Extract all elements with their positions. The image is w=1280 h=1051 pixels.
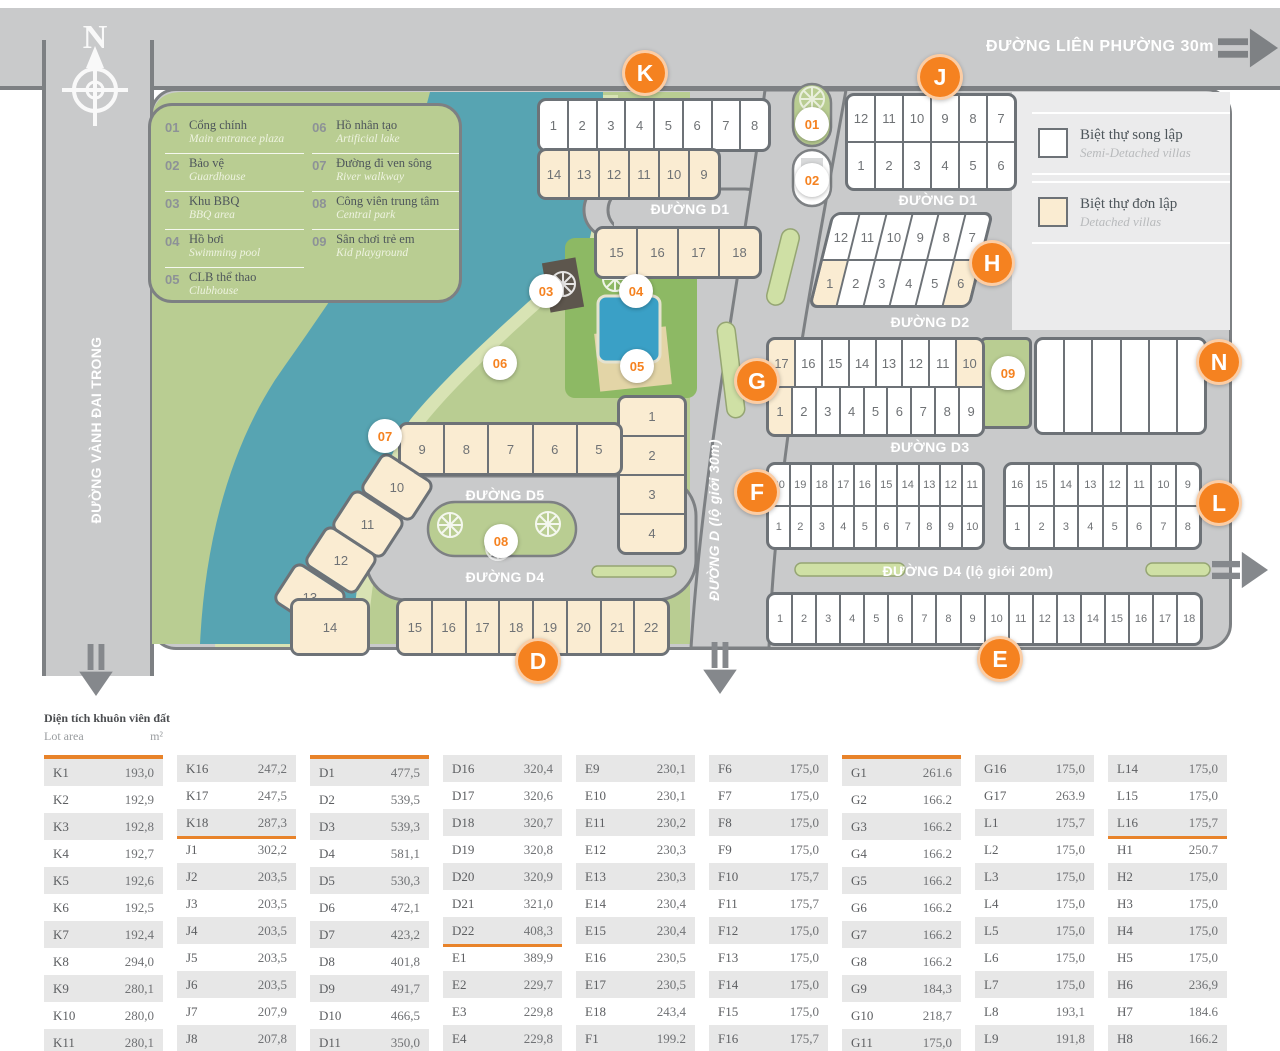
table-row: D10466,5 bbox=[310, 1002, 429, 1029]
lot-id: D19 bbox=[452, 842, 474, 858]
lot-number: 17 bbox=[475, 620, 489, 635]
lot-cell: 11 bbox=[1010, 595, 1032, 643]
lot-table-column-9: L14175,0L15175,0L16175,7H1250.7H2175,0H3… bbox=[1108, 755, 1227, 1051]
lot-id: F16 bbox=[718, 1031, 738, 1047]
lot-id: K8 bbox=[53, 954, 69, 970]
lot-id: H3 bbox=[1117, 896, 1133, 912]
amenity-marker-07: 07 bbox=[368, 419, 402, 453]
lot-id: E10 bbox=[585, 788, 606, 804]
lot-cell: 12 bbox=[1104, 465, 1126, 505]
lot-number: 14 bbox=[1087, 613, 1099, 625]
table-row: K11280,1 bbox=[44, 1029, 163, 1051]
lot-area-value: 175,0 bbox=[1056, 896, 1085, 912]
lot-cell: 19 bbox=[791, 465, 811, 505]
lot-id: G6 bbox=[851, 900, 867, 916]
lot-area-value: 530,3 bbox=[391, 873, 420, 889]
lot-id: K17 bbox=[186, 788, 208, 804]
lot-cell: 4 bbox=[626, 101, 653, 149]
legend-item-number: 07 bbox=[312, 157, 336, 173]
lot-cell bbox=[1122, 340, 1148, 432]
lot-cell: 16 bbox=[638, 229, 677, 276]
lot-id: D11 bbox=[319, 1035, 341, 1051]
lot-number: 3 bbox=[913, 158, 920, 173]
marker-L: L bbox=[1196, 480, 1242, 526]
block-row: 161514131211109 bbox=[1006, 465, 1199, 505]
lot-area-value: 166.2 bbox=[923, 954, 952, 970]
lot-area-value: 477,5 bbox=[391, 765, 420, 781]
lot-id: G3 bbox=[851, 819, 867, 835]
table-row: J3203,5 bbox=[177, 890, 296, 917]
block-row: 4 bbox=[620, 515, 684, 552]
block-row bbox=[1037, 340, 1204, 432]
lot-number: 5 bbox=[1112, 521, 1118, 533]
lot-area-value: 203,5 bbox=[258, 896, 287, 912]
lot-area-value: 250.7 bbox=[1189, 842, 1218, 858]
legend-item-text: Khu BBQBBQ area bbox=[189, 195, 239, 222]
lot-cell: 21 bbox=[602, 601, 634, 653]
lot-number: 16 bbox=[441, 620, 455, 635]
lot-id: D2 bbox=[319, 792, 335, 808]
lot-number: 2 bbox=[1039, 521, 1045, 533]
table-row: G4166.2 bbox=[842, 840, 961, 867]
legend-item-03: 03Khu BBQBBQ area bbox=[165, 192, 304, 230]
lot-id: E13 bbox=[585, 869, 606, 885]
lot-area-value: 175,0 bbox=[790, 788, 819, 804]
block-d_up: 98765 bbox=[398, 422, 623, 476]
lot-id: F1 bbox=[585, 1031, 599, 1047]
table-row: H8166.2 bbox=[1108, 1025, 1227, 1051]
lot-id: E17 bbox=[585, 977, 606, 993]
table-row: G1261.6 bbox=[842, 759, 961, 786]
block-j: 121110987123456 bbox=[845, 93, 1017, 191]
lot-table-header: Diện tích khuôn viên đất Lot area m² bbox=[44, 711, 163, 744]
lot-number: 7 bbox=[969, 230, 976, 245]
block-k_mid: 14131211109 bbox=[537, 148, 721, 200]
road-label-d5: ĐƯỜNG D5 bbox=[466, 487, 545, 503]
table-row: D5530,3 bbox=[310, 867, 429, 894]
table-row: E9230,1 bbox=[576, 755, 695, 782]
lot-cell bbox=[1037, 340, 1063, 432]
road-label-d4-main: ĐƯỜNG D4 (lộ giới 20m) bbox=[883, 563, 1054, 579]
lot-number: 9 bbox=[948, 521, 954, 533]
legend-item-text: Hồ nhân tạoArtificial lake bbox=[336, 119, 400, 146]
lot-number: 6 bbox=[896, 404, 903, 419]
lot-id: L14 bbox=[1117, 761, 1138, 777]
lot-cell: 1 bbox=[769, 595, 791, 643]
villa-swatch-icon bbox=[1038, 128, 1068, 158]
lot-cell: 3 bbox=[904, 143, 930, 188]
lot-id: D16 bbox=[452, 761, 474, 777]
lot-area-value: 175,7 bbox=[1056, 815, 1085, 831]
table-row: D22408,3 bbox=[443, 917, 562, 944]
block-n_block bbox=[1034, 337, 1207, 435]
lot-id: K4 bbox=[53, 846, 69, 862]
lot-cell: 2 bbox=[791, 507, 811, 547]
table-row: K8294,0 bbox=[44, 948, 163, 975]
lot-cell: 3 bbox=[620, 476, 684, 513]
lot-area-value: 539,5 bbox=[391, 792, 420, 808]
lot-number: 17 bbox=[837, 479, 849, 491]
lot-cell: 10 bbox=[660, 151, 688, 197]
legend-item-text: Công viên trung tâmCentral park bbox=[336, 195, 439, 222]
table-row: L1175,7 bbox=[975, 809, 1094, 836]
lot-number: 14 bbox=[323, 620, 337, 635]
legend-item-09: 09Sân chơi trẻ emKid playground bbox=[312, 230, 459, 267]
lot-cell: 14 bbox=[540, 151, 568, 197]
table-row: D3539,3 bbox=[310, 813, 429, 840]
lot-area-value: 175,0 bbox=[1189, 923, 1218, 939]
legend-item-number: 06 bbox=[312, 119, 336, 135]
legend-item-name-en: BBQ area bbox=[189, 209, 239, 222]
lot-id: G2 bbox=[851, 792, 867, 808]
lot-number: 7 bbox=[921, 613, 927, 625]
amenity-legend-col2: 06Hồ nhân tạoArtificial lake07Đường đi v… bbox=[312, 116, 459, 305]
lot-number: 2 bbox=[579, 118, 586, 133]
lot-number: 5 bbox=[969, 158, 976, 173]
lot-cell: 13 bbox=[1058, 595, 1080, 643]
lot-area-value: 199.2 bbox=[657, 1031, 686, 1047]
lot-area-value: 491,7 bbox=[391, 981, 420, 997]
lot-area-value: 472,1 bbox=[391, 900, 420, 916]
lot-number: 2 bbox=[885, 158, 892, 173]
table-row: G6166.2 bbox=[842, 894, 961, 921]
lot-number: 18 bbox=[509, 620, 523, 635]
lot-area-value: 207,8 bbox=[258, 1031, 287, 1047]
legend-item-text: Bảo vệGuardhouse bbox=[189, 157, 245, 184]
lot-id: H5 bbox=[1117, 950, 1133, 966]
lot-id: F12 bbox=[718, 923, 738, 939]
table-row: G7166.2 bbox=[842, 921, 961, 948]
lot-area-value: 166.2 bbox=[1189, 1031, 1218, 1047]
legend-item-06: 06Hồ nhân tạoArtificial lake bbox=[312, 116, 459, 154]
block-row: 14131211109 bbox=[540, 151, 718, 197]
table-row: L2175,0 bbox=[975, 836, 1094, 863]
lot-cell: 18 bbox=[812, 465, 832, 505]
lot-cell: 15 bbox=[823, 340, 848, 386]
table-row: F16175,7 bbox=[709, 1025, 828, 1051]
lot-cell: 7 bbox=[988, 96, 1014, 141]
lot-number: 9 bbox=[418, 442, 425, 457]
lot-area-value: 243,4 bbox=[657, 1004, 686, 1020]
lot-number: 6 bbox=[694, 118, 701, 133]
lot-id: K11 bbox=[53, 1035, 75, 1051]
lot-number: 4 bbox=[905, 276, 912, 291]
lot-area-value: 175,0 bbox=[790, 950, 819, 966]
road-label-d1-left: ĐƯỜNG D1 bbox=[651, 201, 730, 217]
lot-area-value: 423,2 bbox=[391, 927, 420, 943]
lot-number: 13 bbox=[577, 167, 591, 182]
lot-area-value: 192,6 bbox=[125, 873, 154, 889]
lot-number: 7 bbox=[920, 404, 927, 419]
lot-area-value: 184.6 bbox=[1189, 1004, 1218, 1020]
lot-area-value: 175,7 bbox=[790, 1031, 819, 1047]
lot-area-value: 230,4 bbox=[657, 923, 686, 939]
block-row: 12345678 bbox=[1006, 507, 1199, 547]
lot-number: 6 bbox=[997, 158, 1004, 173]
lot-number: 10 bbox=[966, 521, 978, 533]
lot-area-value: 192,7 bbox=[125, 846, 154, 862]
lot-cell: 7 bbox=[713, 101, 740, 149]
road-label-d4-small: ĐƯỜNG D4 bbox=[466, 569, 545, 585]
lot-number: 15 bbox=[828, 356, 842, 371]
table-row: G5166.2 bbox=[842, 867, 961, 894]
lot-cell: 8 bbox=[1177, 507, 1199, 547]
lot-cell: 14 bbox=[1082, 595, 1104, 643]
lot-id: D8 bbox=[319, 954, 335, 970]
table-row: K3192,8 bbox=[44, 813, 163, 840]
lot-cell: 22 bbox=[635, 601, 667, 653]
lot-id: F15 bbox=[718, 1004, 738, 1020]
lot-number: 8 bbox=[943, 230, 950, 245]
lot-area-value: 191,8 bbox=[1056, 1031, 1085, 1047]
lot-number: 10 bbox=[990, 613, 1002, 625]
table-row: J8207,8 bbox=[177, 1025, 296, 1051]
lot-area-value: 207,9 bbox=[258, 1004, 287, 1020]
table-row: E3229,8 bbox=[443, 998, 562, 1025]
lot-number: 18 bbox=[816, 479, 828, 491]
amenity-marker-03: 03 bbox=[529, 274, 563, 308]
lot-area-value: 229,8 bbox=[524, 1031, 553, 1047]
lot-cell: 14 bbox=[1055, 465, 1077, 505]
legend-item-text: Đường đi ven sôngRiver walkway bbox=[336, 157, 432, 184]
table-row: G2166.2 bbox=[842, 786, 961, 813]
lot-number: 2 bbox=[801, 613, 807, 625]
lot-number: 15 bbox=[609, 245, 623, 260]
lot-area-value: 175,0 bbox=[1056, 977, 1085, 993]
lot-id: G17 bbox=[984, 788, 1006, 804]
table-row: L14175,0 bbox=[1108, 755, 1227, 782]
lot-cell: 16 bbox=[1130, 595, 1152, 643]
lot-area-value: 229,7 bbox=[524, 977, 553, 993]
legend-item-name-en: Kid playground bbox=[336, 247, 414, 260]
table-row: E18243,4 bbox=[576, 998, 695, 1025]
lot-cell: 14 bbox=[898, 465, 918, 505]
table-row: K6192,5 bbox=[44, 894, 163, 921]
lot-number: 11 bbox=[967, 479, 978, 491]
block-row: 1716151413121110 bbox=[769, 340, 982, 386]
lot-cell: 6 bbox=[534, 425, 576, 473]
road-label-vanh-dai-trong: ĐƯỜNG VÀNH ĐAI TRONG bbox=[88, 337, 104, 524]
lot-area-value: 175,7 bbox=[790, 896, 819, 912]
lot-area-value: 263.9 bbox=[1056, 788, 1085, 804]
lot-cell: 2 bbox=[1030, 507, 1052, 547]
legend-item-number: 04 bbox=[165, 233, 189, 249]
lot-cell: 20 bbox=[568, 601, 600, 653]
lot-number: 1 bbox=[857, 158, 864, 173]
legend-item-name-vi: Hồ nhân tạo bbox=[336, 119, 400, 133]
lot-number: 10 bbox=[886, 230, 900, 245]
lot-number: 11 bbox=[882, 111, 896, 126]
arrow-right-d4-icon bbox=[1212, 550, 1268, 590]
amenity-legend: 01Cổng chínhMain entrance plaza02Bảo vệG… bbox=[148, 103, 462, 303]
lot-cell: 7 bbox=[912, 388, 934, 434]
villa-type-text: Biệt thự đơn lậpDetached villas bbox=[1080, 195, 1177, 230]
lot-cell: 12 bbox=[1034, 595, 1056, 643]
lot-number: 5 bbox=[595, 442, 602, 457]
lot-table-column-5: E9230,1E10230,1E11230,2E12230,3E13230,3E… bbox=[576, 755, 695, 1051]
lot-number: 11 bbox=[361, 517, 375, 532]
lot-area-value: 236,9 bbox=[1189, 977, 1218, 993]
lot-cell: 18 bbox=[1178, 595, 1200, 643]
table-row: G10218,7 bbox=[842, 1002, 961, 1029]
lot-area-value: 321,0 bbox=[524, 896, 553, 912]
lot-number: 14 bbox=[1060, 479, 1072, 491]
lot-number: 12 bbox=[909, 356, 923, 371]
lot-id: E2 bbox=[452, 977, 466, 993]
table-row: K9280,1 bbox=[44, 975, 163, 1002]
lot-id: H4 bbox=[1117, 923, 1133, 939]
lot-area-value: 229,8 bbox=[524, 1004, 553, 1020]
lot-number: 3 bbox=[825, 613, 831, 625]
lot-id: L2 bbox=[984, 842, 998, 858]
lot-id: K9 bbox=[53, 981, 69, 997]
lot-table-column-3: D1477,5D2539,5D3539,3D4581,1D5530,3D6472… bbox=[310, 755, 429, 1051]
lot-area-value: 408,3 bbox=[524, 923, 553, 939]
lot-area-value: 203,5 bbox=[258, 923, 287, 939]
lot-id: J2 bbox=[186, 869, 198, 885]
table-row: H4175,0 bbox=[1108, 917, 1227, 944]
lot-area-value: 175,0 bbox=[790, 1004, 819, 1020]
lot-id: K3 bbox=[53, 819, 69, 835]
lot-number: 9 bbox=[941, 111, 948, 126]
marker-E: E bbox=[977, 636, 1023, 682]
lot-id: K18 bbox=[186, 815, 208, 831]
lot-id: F6 bbox=[718, 761, 732, 777]
table-row: K5192,6 bbox=[44, 867, 163, 894]
lot-number: 8 bbox=[751, 118, 758, 133]
lot-area-value: 280,1 bbox=[125, 1035, 154, 1051]
lot-area-value: 192,4 bbox=[125, 927, 154, 943]
table-row: E16230,5 bbox=[576, 944, 695, 971]
table-row: K7192,4 bbox=[44, 921, 163, 948]
lot-cell: 17 bbox=[467, 601, 499, 653]
lot-area-value: 230,2 bbox=[657, 815, 686, 831]
lot-number: 8 bbox=[1185, 521, 1191, 533]
amenity-marker-08: 08 bbox=[484, 524, 518, 558]
lot-area-value: 175,0 bbox=[923, 1035, 952, 1051]
lot-area-value: 320,9 bbox=[524, 869, 553, 885]
legend-item-name-vi: CLB thể thao bbox=[189, 271, 256, 285]
lot-number: 8 bbox=[945, 613, 951, 625]
table-row: D18320,7 bbox=[443, 809, 562, 836]
lot-id: E12 bbox=[585, 842, 606, 858]
lot-cell: 18 bbox=[720, 229, 759, 276]
lot-cell: 10 bbox=[904, 96, 930, 141]
lot-area-value: 175,0 bbox=[790, 977, 819, 993]
villa-type-semi: Biệt thự song lậpSemi-Detached villas bbox=[1032, 112, 1230, 175]
legend-item-number: 09 bbox=[312, 233, 336, 249]
lot-cell: 9 bbox=[932, 96, 958, 141]
table-row: E4229,8 bbox=[443, 1025, 562, 1051]
lot-area-value: 401,8 bbox=[391, 954, 420, 970]
table-row: D2539,5 bbox=[310, 786, 429, 813]
amenity-legend-col1: 01Cổng chínhMain entrance plaza02Bảo vệG… bbox=[165, 116, 304, 305]
lot-table-column-2: K16247,2K17247,5K18287,3J1302,2J2203,5J3… bbox=[177, 755, 296, 1051]
lot-cell: 5 bbox=[1104, 507, 1126, 547]
lot-area-value: 175,7 bbox=[790, 869, 819, 885]
table-row: G11175,0 bbox=[842, 1029, 961, 1051]
table-row: F7175,0 bbox=[709, 782, 828, 809]
legend-item-name-en: River walkway bbox=[336, 171, 432, 184]
marker-K: K bbox=[622, 50, 668, 96]
lot-id: E18 bbox=[585, 1004, 606, 1020]
lot-id: K6 bbox=[53, 900, 69, 916]
table-row: D16320,4 bbox=[443, 755, 562, 782]
table-row: D20320,9 bbox=[443, 863, 562, 890]
lot-area-value: 320,4 bbox=[524, 761, 553, 777]
lot-id: K7 bbox=[53, 927, 69, 943]
lot-cell: 16 bbox=[855, 465, 875, 505]
lot-cell: 3 bbox=[817, 388, 839, 434]
lot-cell: 17 bbox=[834, 465, 854, 505]
table-row: K4192,7 bbox=[44, 840, 163, 867]
lot-number: 14 bbox=[547, 167, 561, 182]
marker-H: H bbox=[969, 240, 1015, 286]
lot-cell: 11 bbox=[876, 96, 902, 141]
legend-item-02: 02Bảo vệGuardhouse bbox=[165, 154, 304, 192]
lot-number: 15 bbox=[408, 620, 422, 635]
lot-number: 1 bbox=[776, 404, 783, 419]
legend-item-name-vi: Cổng chính bbox=[189, 119, 284, 133]
lot-cell: 2 bbox=[876, 143, 902, 188]
lot-id: L6 bbox=[984, 950, 998, 966]
compass-icon: N bbox=[52, 16, 138, 128]
lot-id: G7 bbox=[851, 927, 867, 943]
lot-id: J4 bbox=[186, 923, 198, 939]
lot-area-value: 184,3 bbox=[923, 981, 952, 997]
lot-number: 6 bbox=[957, 276, 964, 291]
lot-table-title-en: Lot area bbox=[44, 729, 84, 744]
lot-area-value: 261.6 bbox=[923, 765, 952, 781]
lot-cell: 12 bbox=[600, 151, 628, 197]
lot-id: G16 bbox=[984, 761, 1006, 777]
lot-area-value: 166.2 bbox=[923, 873, 952, 889]
block-row: 15161718 bbox=[597, 229, 759, 276]
arrow-down-left-icon bbox=[76, 644, 116, 696]
lot-number: 14 bbox=[902, 479, 914, 491]
lot-cell: 9 bbox=[962, 595, 984, 643]
lot-number: 13 bbox=[882, 356, 896, 371]
legend-item-text: Sân chơi trẻ emKid playground bbox=[336, 233, 414, 260]
lot-cell: 1 bbox=[848, 143, 874, 188]
legend-item-name-en: Swimming pool bbox=[189, 247, 260, 260]
legend-item-08: 08Công viên trung tâmCentral park bbox=[312, 192, 459, 230]
lot-number: 3 bbox=[648, 487, 655, 502]
lot-number: 1 bbox=[1014, 521, 1020, 533]
table-row: K16247,2 bbox=[177, 755, 296, 782]
lot-id: D20 bbox=[452, 869, 474, 885]
block-d14: 14 bbox=[290, 598, 370, 656]
amenity-marker-06: 06 bbox=[483, 346, 517, 380]
table-row: J5203,5 bbox=[177, 944, 296, 971]
lot-cell: 4 bbox=[620, 515, 684, 552]
legend-item-name-vi: Đường đi ven sông bbox=[336, 157, 432, 171]
table-row: D7423,2 bbox=[310, 921, 429, 948]
lot-id: D7 bbox=[319, 927, 335, 943]
lot-id: F11 bbox=[718, 896, 738, 912]
villa-type-name-en: Semi-Detached villas bbox=[1080, 145, 1191, 161]
lot-area-value: 166.2 bbox=[923, 927, 952, 943]
lot-number: 19 bbox=[543, 620, 557, 635]
lot-cell: 12 bbox=[941, 465, 961, 505]
lot-id: D22 bbox=[452, 923, 474, 939]
lot-cell: 13 bbox=[877, 340, 902, 386]
lot-number: 12 bbox=[854, 111, 868, 126]
lot-area-value: 203,5 bbox=[258, 869, 287, 885]
block-row: 2 bbox=[620, 437, 684, 474]
table-row: D11350,0 bbox=[310, 1029, 429, 1051]
lot-area-value: 320,6 bbox=[524, 788, 553, 804]
